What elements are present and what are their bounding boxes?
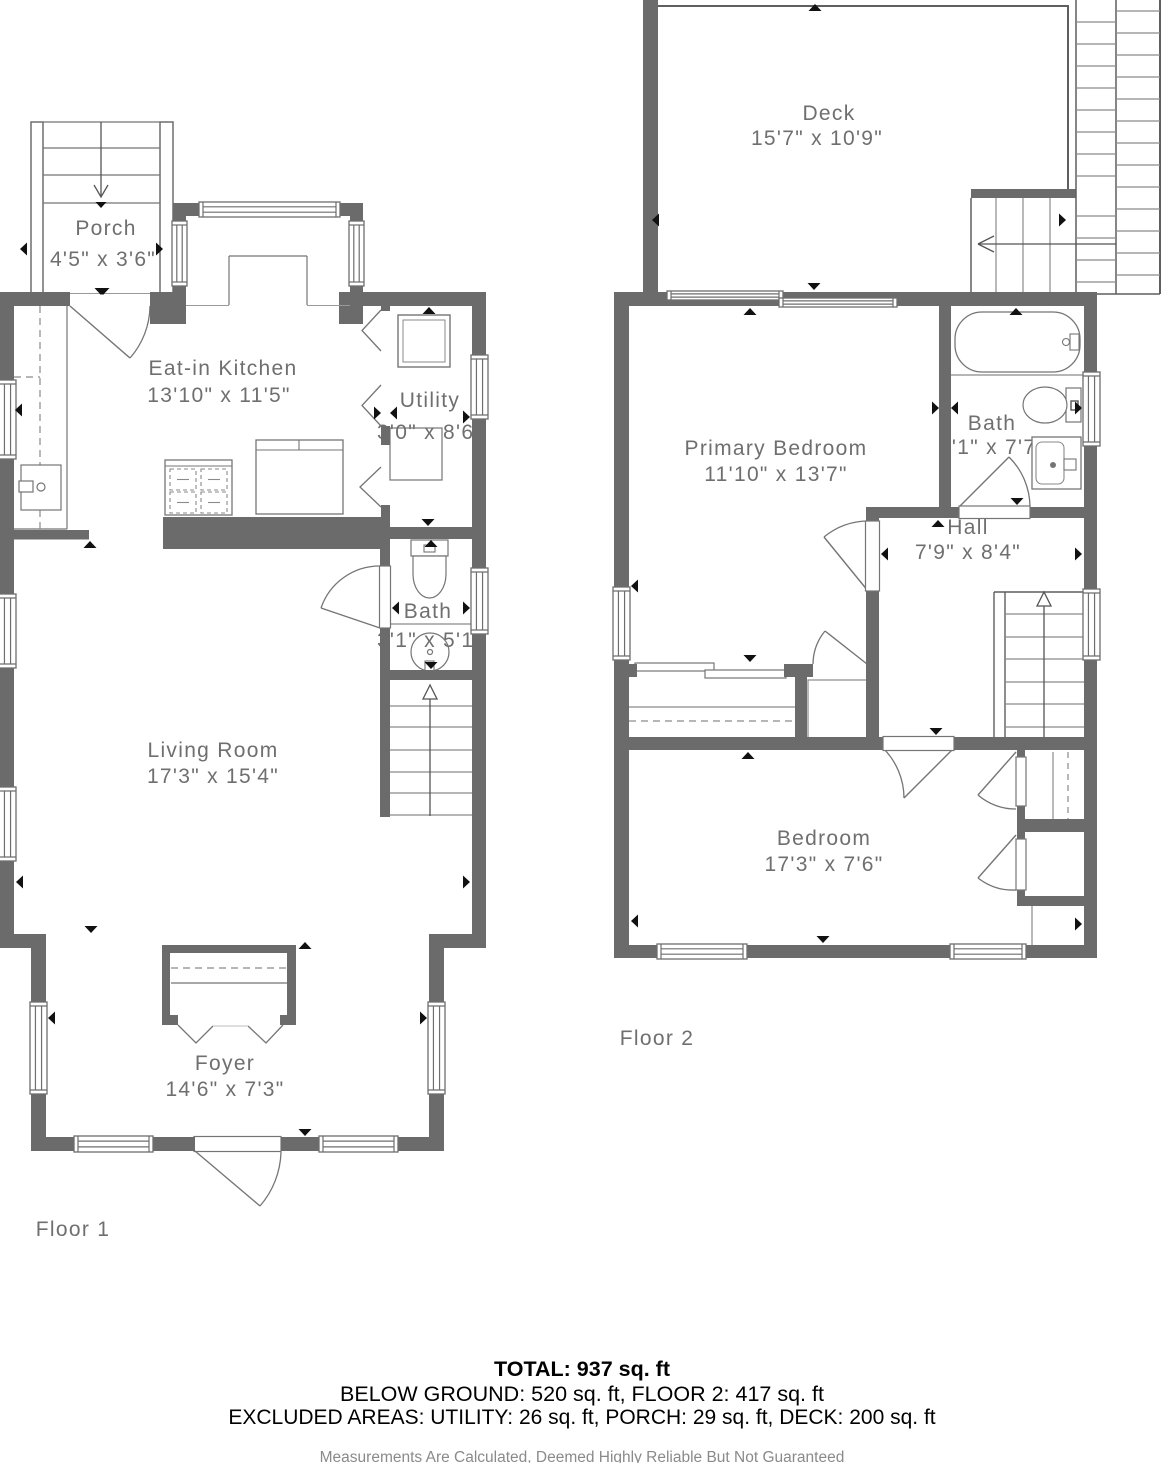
svg-text:Primary Bedroom: Primary Bedroom [685, 437, 868, 460]
svg-text:BELOW GROUND: 520 sq. ft, FLOO: BELOW GROUND: 520 sq. ft, FLOOR 2: 417 s… [340, 1382, 824, 1406]
svg-text:Bath: Bath [404, 600, 452, 623]
svg-text:Foyer: Foyer [195, 1052, 255, 1075]
svg-text:Bath: Bath [968, 412, 1016, 435]
svg-text:3'0" x 8'6": 3'0" x 8'6" [377, 421, 483, 444]
svg-text:15'7" x 10'9": 15'7" x 10'9" [751, 127, 883, 150]
svg-text:3'1" x 5'1": 3'1" x 5'1" [377, 629, 483, 652]
svg-text:Deck: Deck [802, 102, 855, 125]
svg-text:7'9" x 8'4": 7'9" x 8'4" [915, 541, 1021, 564]
svg-text:17'3" x 15'4": 17'3" x 15'4" [147, 765, 279, 788]
svg-text:Living Room: Living Room [147, 739, 278, 762]
svg-text:4'5" x 3'6": 4'5" x 3'6" [50, 248, 156, 271]
svg-text:EXCLUDED AREAS: UTILITY: 26 sq: EXCLUDED AREAS: UTILITY: 26 sq. ft, PORC… [228, 1406, 935, 1429]
svg-text:TOTAL: 937 sq. ft: TOTAL: 937 sq. ft [494, 1357, 670, 1381]
svg-text:Porch: Porch [75, 217, 136, 240]
svg-text:14'6" x 7'3": 14'6" x 7'3" [165, 1078, 284, 1101]
svg-text:5'1" x 7'7": 5'1" x 7'7" [939, 436, 1045, 459]
svg-text:Eat-in Kitchen: Eat-in Kitchen [149, 357, 298, 380]
svg-text:Floor 2: Floor 2 [620, 1027, 694, 1050]
svg-text:Hall: Hall [947, 516, 988, 539]
svg-text:17'3" x 7'6": 17'3" x 7'6" [764, 853, 883, 876]
svg-text:Floor 1: Floor 1 [36, 1218, 110, 1241]
svg-text:Measurements Are Calculated, D: Measurements Are Calculated, Deemed High… [320, 1449, 845, 1463]
svg-text:Utility: Utility [400, 389, 460, 412]
svg-text:11'10" x 13'7": 11'10" x 13'7" [704, 463, 848, 486]
svg-text:13'10" x 11'5": 13'10" x 11'5" [147, 384, 291, 407]
svg-text:Bedroom: Bedroom [777, 827, 871, 850]
